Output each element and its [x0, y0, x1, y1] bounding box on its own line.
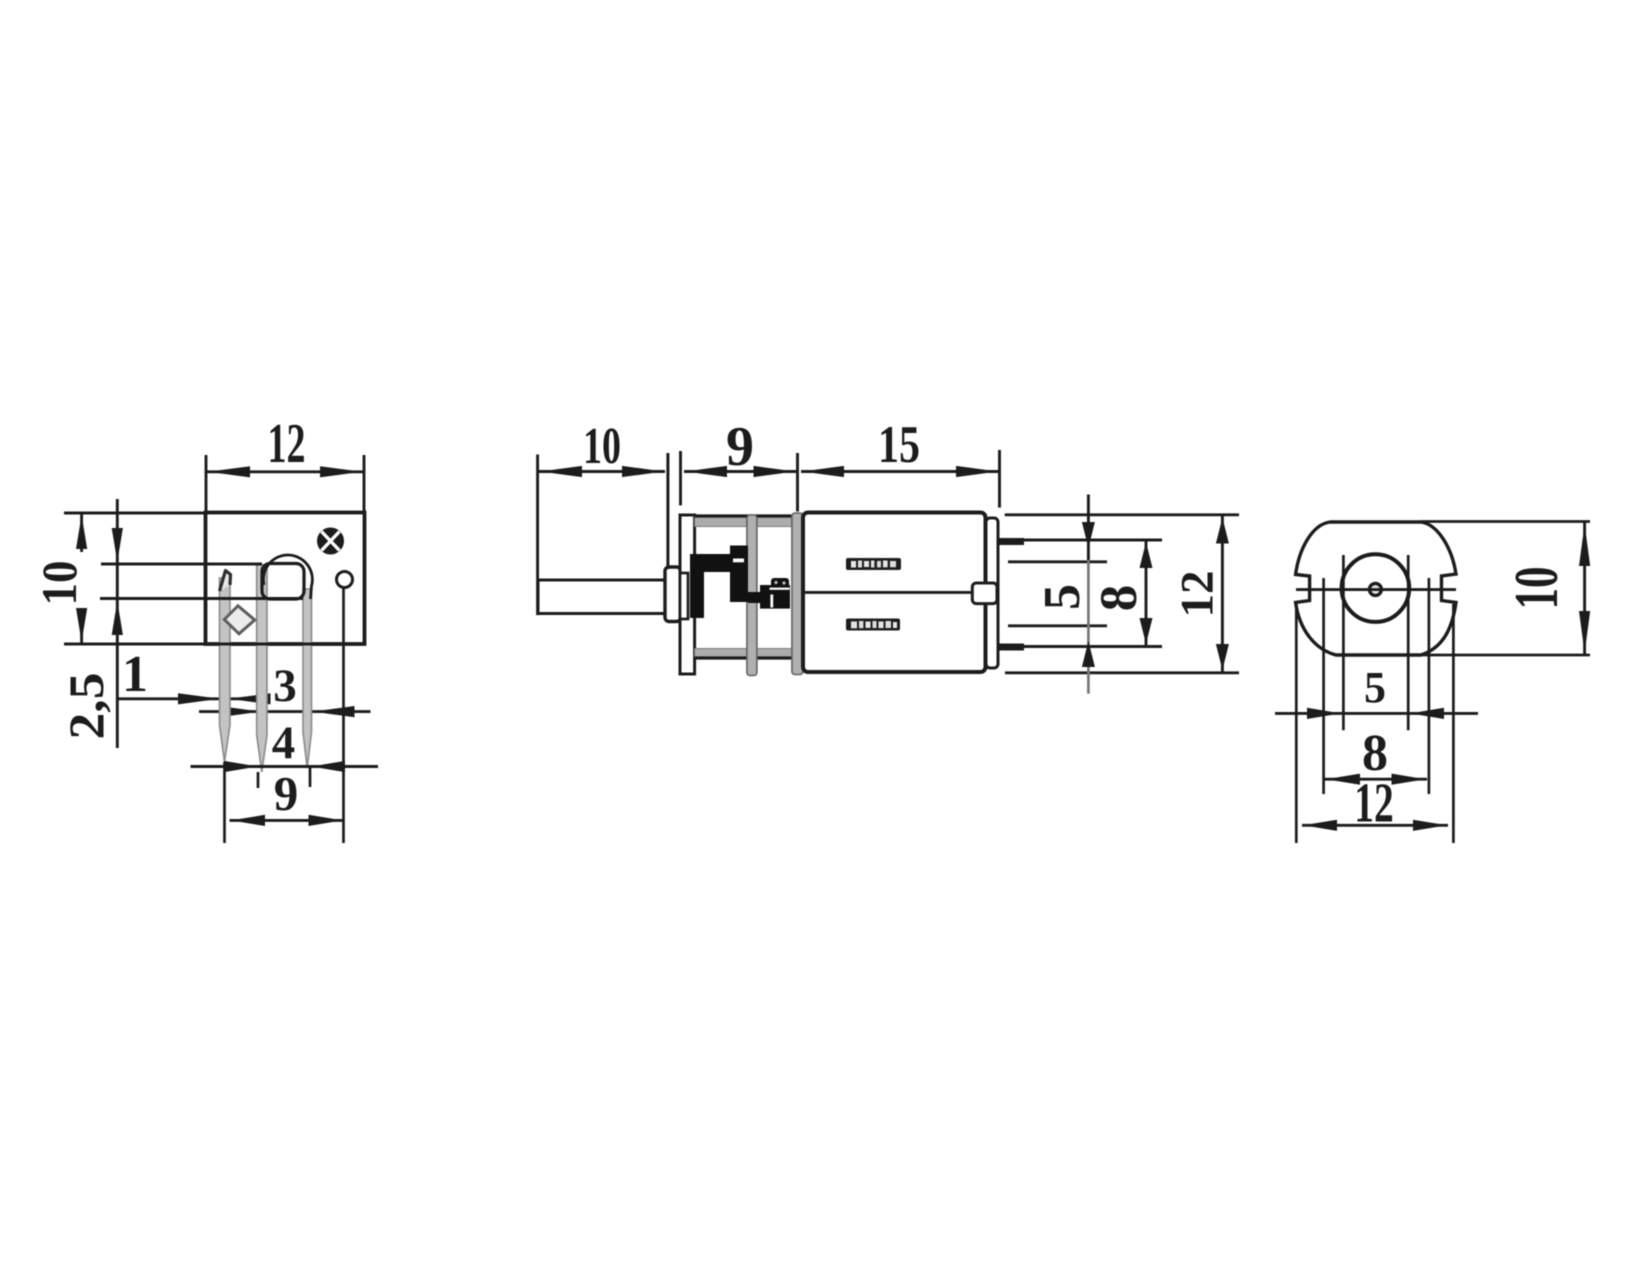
svg-text:9: 9 — [274, 766, 299, 821]
svg-text:5: 5 — [1364, 663, 1386, 712]
svg-text:3: 3 — [273, 660, 297, 712]
svg-text:2,5: 2,5 — [58, 673, 114, 740]
svg-text:12: 12 — [1172, 571, 1224, 618]
svg-text:5: 5 — [1034, 584, 1091, 610]
svg-text:12: 12 — [268, 413, 306, 475]
svg-text:12: 12 — [1354, 773, 1394, 835]
svg-text:15: 15 — [878, 416, 920, 474]
svg-text:4: 4 — [272, 717, 296, 769]
svg-text:8: 8 — [1090, 585, 1148, 612]
svg-text:9: 9 — [726, 416, 754, 478]
svg-text:1: 1 — [122, 646, 148, 703]
svg-text:10: 10 — [583, 418, 621, 475]
svg-text:10: 10 — [1503, 567, 1571, 610]
svg-text:10: 10 — [31, 561, 87, 606]
